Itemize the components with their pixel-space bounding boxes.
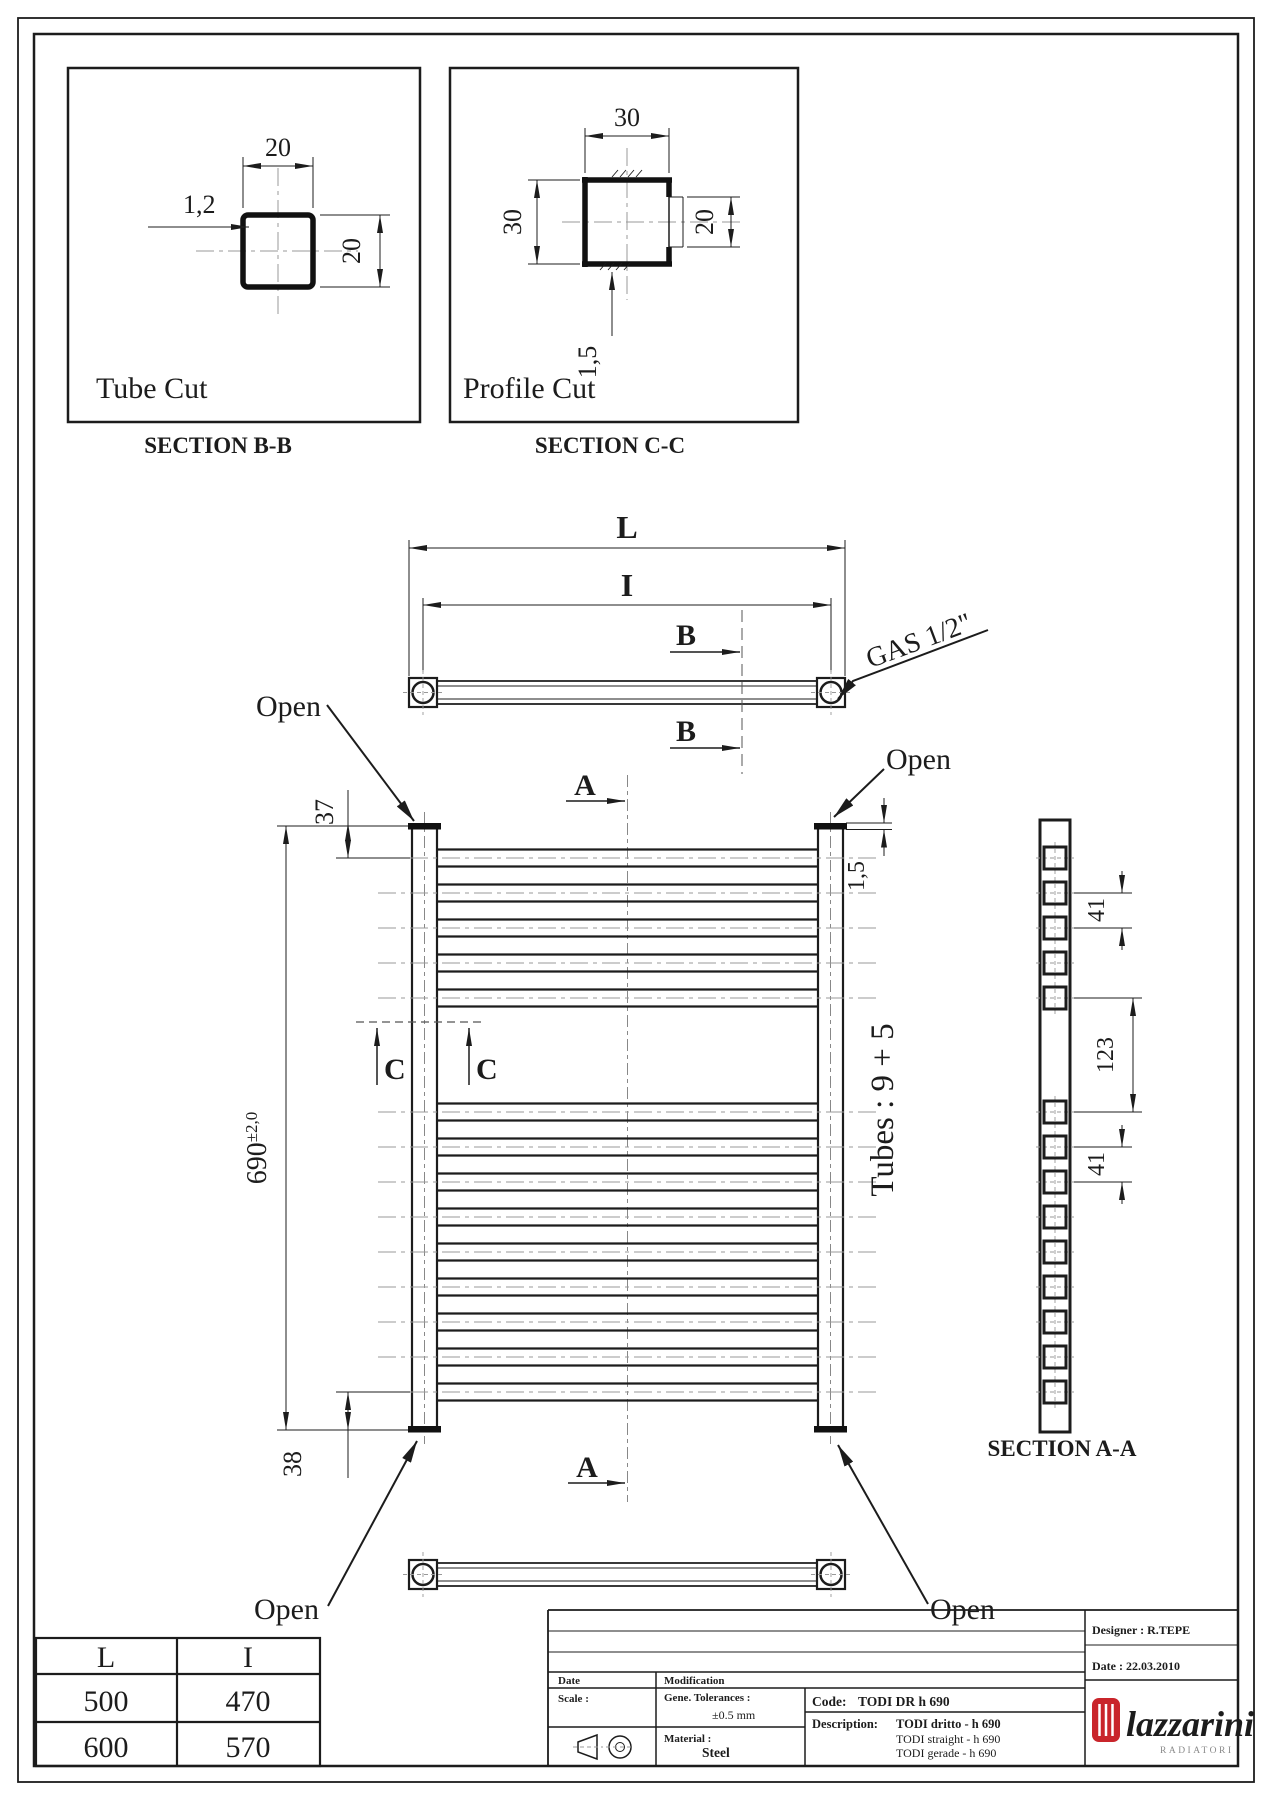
profile-cut-detail: 30 30 20 1,5 Profile Cut xyxy=(450,68,798,422)
open-callout-top-right: Open xyxy=(886,743,951,776)
dim-pitch-top: 41 xyxy=(1084,898,1110,922)
description-line3: TODI gerade - h 690 xyxy=(896,1746,996,1760)
section-a-mark-top: A xyxy=(574,769,596,802)
dim-bottom-offset: 38 xyxy=(278,1451,307,1477)
table-cell: 570 xyxy=(226,1731,271,1764)
open-callout-bottom-left: Open xyxy=(254,1593,319,1626)
bottom-plan-view xyxy=(403,1552,851,1597)
radiator-emblem-icon xyxy=(1092,1698,1120,1742)
dim-height: 690±2,0 xyxy=(242,1112,273,1185)
section-c-mark-left: C xyxy=(384,1053,406,1086)
table-cell: 600 xyxy=(84,1731,129,1764)
section-cc-label: SECTION C-C xyxy=(535,433,685,458)
code-label: Code: xyxy=(812,1694,847,1709)
section-a-mark-bottom: A xyxy=(576,1451,598,1484)
table-header-L: L xyxy=(97,1641,115,1674)
tubes-count-label: Tubes : 9 + 5 xyxy=(865,1023,901,1196)
description-line2: TODI straight - h 690 xyxy=(896,1732,1000,1746)
description-line1: TODI dritto - h 690 xyxy=(896,1717,1001,1731)
open-end-top-left xyxy=(408,823,441,830)
description-label: Description: xyxy=(812,1717,878,1731)
dim-top-offset: 37 xyxy=(310,799,339,825)
tolerance-value: ±0.5 mm xyxy=(712,1708,756,1722)
technical-drawing-canvas: 20 20 1,2 Tube Cut SECTION B-B xyxy=(0,0,1272,1800)
profile-width-dim: 30 xyxy=(614,103,640,132)
table-header-I: I xyxy=(243,1641,253,1674)
section-bb-label: SECTION B-B xyxy=(144,433,292,458)
table-cell: 500 xyxy=(84,1685,129,1718)
date-value: Date : 22.03.2010 xyxy=(1092,1659,1180,1673)
dim-cap-thickness: 1,5 xyxy=(844,861,870,891)
profile-cut-title: Profile Cut xyxy=(463,372,596,405)
section-b-mark-top: B xyxy=(676,619,696,652)
dim-pitch-bottom: 41 xyxy=(1084,1152,1110,1176)
profile-opening-dim: 20 xyxy=(690,209,719,235)
tube-height-dim: 20 xyxy=(337,238,366,264)
open-end-bottom-right xyxy=(814,1426,847,1433)
tolerance-label: Gene. Tolerances : xyxy=(664,1692,750,1704)
brand-subtitle: RADIATORI xyxy=(1160,1746,1234,1756)
title-block: Date Modification Scale : Gene. Toleranc… xyxy=(548,1610,1254,1766)
tube-wall-dim: 1,2 xyxy=(183,190,216,219)
drawing-sheet: 20 20 1,2 Tube Cut SECTION B-B xyxy=(0,0,1272,1800)
section-aa-view: 41 123 41 xyxy=(1036,820,1142,1432)
section-aa-label: SECTION A-A xyxy=(988,1436,1137,1461)
dim-gap: 123 xyxy=(1093,1037,1119,1073)
profile-height-dim: 30 xyxy=(498,209,527,235)
open-end-bottom-left xyxy=(408,1426,441,1433)
size-table: L I 500 470 600 570 xyxy=(36,1638,320,1766)
modification-label: Modification xyxy=(664,1675,725,1687)
section-c-mark-right: C xyxy=(476,1053,498,1086)
brand-name: lazzarini xyxy=(1126,1704,1254,1744)
dim-I-label: I xyxy=(621,567,633,603)
table-cell: 470 xyxy=(226,1685,271,1718)
tube-width-dim: 20 xyxy=(265,133,291,162)
designer-value: Designer : R.TEPE xyxy=(1092,1623,1190,1637)
section-b-mark-bottom: B xyxy=(676,715,696,748)
material-value: Steel xyxy=(702,1745,730,1760)
tube-cut-detail: 20 20 1,2 Tube Cut xyxy=(68,68,420,422)
dim-L-label: L xyxy=(616,509,637,545)
date-label: Date xyxy=(558,1675,580,1687)
top-plan-view: L I B B GAS 1/2" xyxy=(403,509,988,774)
material-label: Material : xyxy=(664,1733,711,1745)
code-value: TODI DR h 690 xyxy=(858,1694,950,1709)
tube-cut-title: Tube Cut xyxy=(96,372,208,405)
profile-cross-section xyxy=(582,170,683,270)
open-end-top-right xyxy=(814,823,847,830)
open-callout-top-left: Open xyxy=(256,690,321,723)
brand-logo: lazzarini RADIATORI xyxy=(1092,1698,1254,1756)
projection-symbol-icon xyxy=(573,1735,634,1759)
scale-label: Scale : xyxy=(558,1693,589,1705)
